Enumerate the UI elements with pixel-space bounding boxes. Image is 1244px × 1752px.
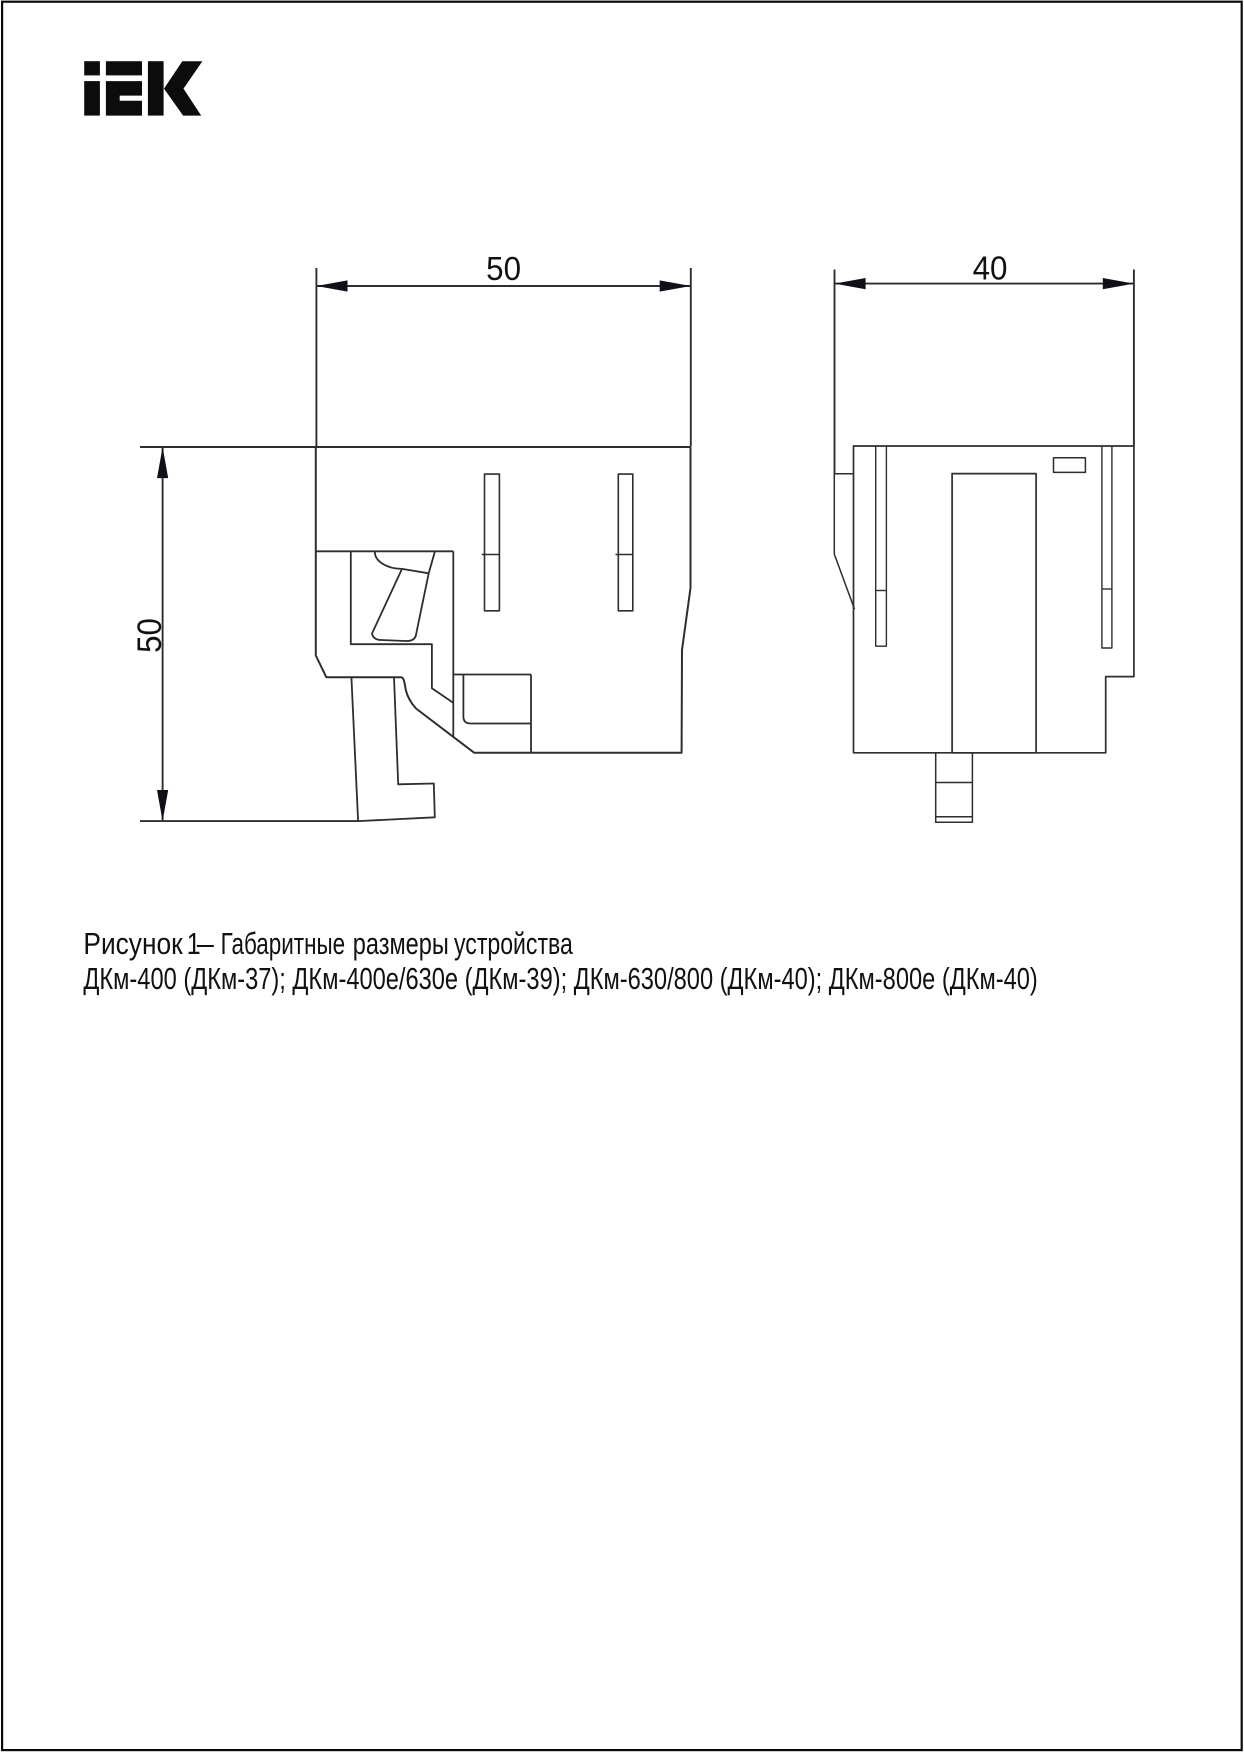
svg-text:40: 40 [973,250,1008,287]
svg-text:размеры: размеры [353,926,449,961]
svg-text:50: 50 [130,618,169,653]
svg-text:Рисунок: Рисунок [83,927,183,961]
svg-text:ДКм-400 (ДКм-37); ДКм-400е/630: ДКм-400 (ДКм-37); ДКм-400е/630е (ДКм-39)… [83,961,1037,996]
svg-text:50: 50 [486,250,521,287]
svg-text:–: – [197,927,214,961]
svg-text:устройства: устройства [454,927,574,961]
svg-text:Габаритные: Габаритные [221,927,345,961]
